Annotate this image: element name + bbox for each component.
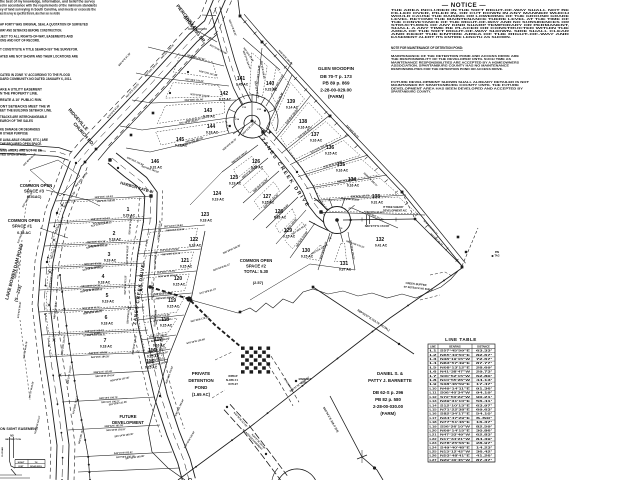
svg-text:145: 145 [176, 137, 185, 143]
svg-text:N71°22'38"E: N71°22'38"E [440, 407, 470, 411]
svg-text:L21: L21 [430, 433, 438, 437]
svg-text:144: 144 [207, 124, 216, 130]
svg-text:S08°46'59"E: S08°46'59"E [440, 382, 470, 386]
svg-text:L22: L22 [430, 437, 438, 441]
svg-text:0.15 AC: 0.15 AC [147, 355, 160, 359]
svg-text:L19: L19 [430, 424, 438, 428]
svg-text:0.15 AC: 0.15 AC [160, 324, 173, 328]
svg-text:L8: L8 [430, 378, 438, 382]
svg-text:COMMON OPEN: COMMON OPEN [8, 218, 41, 223]
svg-text:0.18 AC: 0.18 AC [109, 238, 122, 242]
svg-text:T CONSTITUTE A TITLE SEARCH BY: T CONSTITUTE A TITLE SEARCH BY THE SURVE… [0, 48, 78, 52]
svg-text:N65°40'50"E: N65°40'50"E [440, 353, 470, 357]
svg-text:N10°55'26"W: N10°55'26"W [440, 378, 471, 382]
svg-text:0.31 AC: 0.31 AC [371, 201, 384, 205]
svg-text:87.77': 87.77' [476, 361, 493, 365]
svg-text:DISTANCE: DISTANCE [477, 345, 490, 348]
svg-text:0.18 AC: 0.18 AC [200, 219, 213, 223]
svg-text:6.60': 6.60' [476, 416, 493, 420]
svg-text:LINE TABLE: LINE TABLE [445, 337, 477, 342]
svg-text:0.19 AC: 0.19 AC [104, 259, 117, 263]
svg-text:L7: L7 [430, 374, 438, 378]
svg-text:0.19 AC: 0.19 AC [229, 182, 242, 186]
svg-text:L25: L25 [430, 449, 438, 453]
svg-text:2: 2 [113, 231, 116, 237]
svg-text:ONS AND NOT OF RECORD.: ONS AND NOT OF RECORD. [0, 39, 40, 43]
svg-text:133: 133 [372, 194, 381, 200]
svg-text:COMMON OPEN: COMMON OPEN [240, 258, 273, 263]
svg-text:N26°23'E 89.77': N26°23'E 89.77' [151, 281, 155, 299]
svg-text:N78°25'56"E: N78°25'56"E [440, 441, 470, 445]
svg-text:TOTAL: 5.30: TOTAL: 5.30 [244, 269, 269, 274]
svg-text:(1.65 AC): (1.65 AC) [192, 392, 211, 397]
svg-text:L23: L23 [430, 441, 438, 445]
svg-text:L12: L12 [430, 395, 438, 399]
svg-text:0.45 AC: 0.45 AC [236, 83, 249, 87]
svg-text:SPACE #3: SPACE #3 [24, 189, 45, 194]
svg-text:COMMON OPEN: COMMON OPEN [20, 183, 53, 188]
svg-text:16.37': 16.37' [476, 420, 493, 424]
svg-text:0.15 AC: 0.15 AC [180, 265, 193, 269]
svg-text:SPACE #2: SPACE #2 [246, 264, 267, 269]
svg-text:2-28-00-030.00: 2-28-00-030.00 [373, 404, 404, 409]
svg-text:N47°33'49"W: N47°33'49"W [440, 433, 471, 437]
svg-text:82.67': 82.67' [476, 353, 493, 357]
svg-text:S89°27'3"E 173.58': S89°27'3"E 173.58' [365, 224, 390, 228]
svg-text:DEVELOPMENT: DEVELOPMENT [112, 420, 144, 425]
svg-text:L16: L16 [430, 412, 438, 416]
svg-text:127: 127 [263, 194, 272, 200]
svg-text:NOTE FOR MAINTENANCE OF DETENT: NOTE FOR MAINTENANCE OF DETENTION POND: [391, 46, 463, 50]
svg-text:AP FORTY WAS ORIGINAL SEAL A Q: AP FORTY WAS ORIGINAL SEAL A QUOTATION O… [0, 23, 88, 27]
svg-text:0.18 AC: 0.18 AC [101, 322, 114, 326]
svg-text:140: 140 [266, 81, 275, 87]
svg-text:44.13': 44.13' [476, 378, 493, 382]
svg-text:126: 126 [252, 159, 261, 165]
svg-text:N83°57'49"E: N83°57'49"E [440, 361, 470, 365]
svg-text:0.23 AC: 0.23 AC [265, 88, 278, 92]
svg-text:6: 6 [105, 315, 108, 321]
svg-text:N49°14'11"E: N49°14'11"E [440, 386, 470, 390]
svg-text:S82°34'17"E: S82°34'17"E [440, 412, 470, 416]
svg-text:122: 122 [190, 237, 199, 243]
svg-text:L10: L10 [430, 386, 438, 390]
svg-text:116: 116 [148, 348, 156, 354]
svg-text:82.59': 82.59' [476, 424, 493, 428]
svg-text:DB 62-S p. 296: DB 62-S p. 296 [373, 390, 404, 395]
svg-text:L13: L13 [430, 399, 438, 403]
svg-text:120: 120 [174, 276, 183, 282]
svg-text:S49°40'48"E: S49°40'48"E [440, 445, 470, 449]
svg-text:SPACE #1: SPACE #1 [12, 224, 33, 229]
svg-text:N17°34'21"W: N17°34'21"W [440, 437, 471, 441]
svg-text:118: 118 [161, 317, 169, 323]
svg-text:135: 135 [337, 162, 346, 168]
svg-text:29.73': 29.73' [476, 370, 493, 374]
svg-text:0.15 AC: 0.15 AC [219, 98, 232, 102]
svg-text:4: 4 [102, 274, 105, 280]
svg-text:87.37': 87.37' [476, 458, 493, 462]
svg-text:L4: L4 [430, 361, 438, 365]
svg-text:L11: L11 [430, 391, 438, 395]
svg-text:N77°51'46"E: N77°51'46"E [440, 420, 470, 424]
svg-text:RESPONSIBILITIES FOR THE DETEN: RESPONSIBILITIES FOR THE DETENTION POND … [391, 67, 503, 71]
svg-text:125: 125 [230, 175, 239, 181]
svg-text:0.16 AC: 0.16 AC [347, 184, 360, 188]
svg-text:7: 7 [104, 338, 107, 344]
svg-text:62.83': 62.83' [476, 433, 493, 437]
svg-text:N08°13'12"E: N08°13'12"E [440, 365, 470, 369]
svg-text:DEVELOPMENT A/C: DEVELOPMENT A/C [383, 210, 407, 213]
svg-text:69.63': 69.63' [476, 407, 493, 411]
svg-text:S56°26'10"W: S56°26'10"W [440, 424, 471, 428]
svg-text:5: 5 [106, 293, 109, 299]
svg-text:0.15 AC: 0.15 AC [262, 201, 275, 205]
svg-text:PRIVATE: PRIVATE [192, 371, 210, 376]
svg-text:N38°19'15"W: N38°19'15"W [440, 357, 471, 361]
svg-text:EET THE BUILDING SETBACK LINE.: EET THE BUILDING SETBACK LINE. [0, 109, 52, 113]
svg-text:0.15 AC: 0.15 AC [173, 283, 186, 287]
svg-text:0.18 AC: 0.18 AC [206, 131, 219, 135]
svg-text:0.16 AC: 0.16 AC [274, 216, 287, 220]
svg-text:EARCH OF THE SALES: EARCH OF THE SALES [0, 119, 33, 123]
svg-text:0.19 AC: 0.19 AC [102, 300, 115, 304]
svg-text:OUTLET: OUTLET [228, 383, 238, 386]
svg-text:30.86': 30.86' [476, 428, 493, 432]
svg-text:ATED ARE NOT SHOWN AND THEIR L: ATED ARE NOT SHOWN AND THEIR LOCATIONS A… [0, 55, 78, 59]
svg-text:— NOTICE —: — NOTICE — [442, 2, 487, 9]
svg-text:62.80': 62.80' [476, 374, 493, 378]
svg-text:DETENTION: DETENTION [188, 378, 213, 383]
svg-text:0.15 AC: 0.15 AC [145, 366, 158, 370]
svg-text:L20: L20 [430, 428, 438, 432]
svg-text:132: 132 [376, 237, 385, 243]
svg-text:SIGHT: SIGHT [18, 462, 25, 464]
svg-text:28.97': 28.97' [476, 441, 493, 445]
svg-text:63.33': 63.33' [476, 349, 493, 353]
svg-text:POND: POND [195, 385, 208, 390]
svg-text:N29°40'45"W: N29°40'45"W [440, 458, 471, 462]
svg-text:(FARM): (FARM) [328, 94, 345, 99]
svg-text:1: 1 [127, 207, 130, 213]
svg-text:121: 121 [181, 258, 190, 264]
svg-text:17.47': 17.47' [476, 382, 493, 386]
svg-text:PB 89 p. 869: PB 89 p. 869 [322, 81, 350, 86]
svg-text:0.16 AC: 0.16 AC [310, 139, 323, 143]
svg-text:(FARM): (FARM) [380, 411, 396, 416]
svg-text:ROAD EDG: ROAD EDG [30, 465, 42, 468]
svg-text:56.41': 56.41' [476, 399, 493, 403]
svg-text:DIST: DIST [19, 466, 25, 468]
svg-text:S37°39'W 89.59': S37°39'W 89.59' [154, 251, 158, 269]
svg-text:28.69': 28.69' [476, 365, 493, 369]
svg-text:0.14 AC: 0.14 AC [286, 106, 299, 110]
svg-text:N09°14'15"E: N09°14'15"E [440, 428, 470, 432]
svg-text:0.18 AC: 0.18 AC [189, 244, 202, 248]
svg-text:WAY AND SETBACKS BEFORE CONSTR: WAY AND SETBACKS BEFORE CONSTRUCTION. [0, 29, 62, 33]
svg-text:FUTURE: FUTURE [120, 414, 137, 419]
svg-text:91.36': 91.36' [476, 386, 493, 390]
svg-text:141: 141 [237, 76, 246, 82]
svg-text:N41°38'47"W: N41°38'47"W [440, 370, 471, 374]
svg-text:128: 128 [275, 209, 284, 215]
svg-text:115: 115 [146, 359, 154, 365]
svg-text:L9: L9 [430, 382, 438, 386]
svg-text:139: 139 [287, 99, 296, 105]
svg-text:S57°45'59"E: S57°45'59"E [440, 349, 470, 353]
svg-text:BEARING: BEARING [449, 345, 461, 348]
svg-text:PB 82 p. 580: PB 82 p. 580 [375, 397, 401, 402]
svg-text:L3: L3 [430, 357, 438, 361]
svg-text:S72°50'22"W: S72°50'22"W [440, 395, 471, 399]
svg-text:SLOPE 3:1: SLOPE 3:1 [226, 379, 239, 382]
svg-text:19.00': 19.00' [301, 382, 308, 385]
svg-text:CL ROAD: CL ROAD [1, 447, 4, 457]
svg-text:36.42': 36.42' [476, 449, 493, 453]
svg-text:L5: L5 [430, 365, 438, 369]
svg-text:ass B survey as specified ther: ass B survey as specified therein, also … [0, 12, 60, 16]
svg-text:84.39': 84.39' [476, 437, 493, 441]
svg-text:54.10': 54.10' [476, 412, 493, 416]
svg-text:N34°47'29"E: N34°47'29"E [440, 416, 470, 420]
svg-text:123: 123 [201, 212, 210, 218]
svg-text:DB 70-T p. 173: DB 70-T p. 173 [320, 74, 352, 79]
svg-text:0.16 AC: 0.16 AC [336, 169, 349, 173]
svg-text:146: 146 [151, 159, 160, 165]
svg-text:0.15 AC: 0.15 AC [167, 305, 180, 309]
svg-text:REATE A 10' PUBLIC R/W.: REATE A 10' PUBLIC R/W. [0, 98, 42, 102]
svg-text:0.16 AC: 0.16 AC [298, 126, 311, 130]
svg-text:PATTY J. BARNETTE: PATTY J. BARNETTE [368, 378, 412, 383]
svg-text:0.41 AC: 0.41 AC [375, 244, 388, 248]
svg-text:0.37 AC: 0.37 AC [339, 268, 352, 272]
svg-text:63.97': 63.97' [476, 403, 493, 407]
svg-text:143: 143 [204, 108, 213, 114]
svg-text:DANIEL S. &: DANIEL S. & [377, 371, 404, 376]
svg-text:0.16 AC: 0.16 AC [251, 166, 264, 170]
svg-text:0.19 AC: 0.19 AC [212, 198, 225, 202]
svg-text:N THE PROPERTY LINE.: N THE PROPERTY LINE. [0, 92, 38, 96]
svg-text:72.67': 72.67' [476, 357, 493, 361]
svg-text:138: 138 [299, 119, 308, 125]
svg-text:RIPRAP: RIPRAP [228, 375, 237, 378]
svg-text:L18: L18 [430, 420, 438, 424]
svg-text:124: 124 [213, 191, 222, 197]
svg-text:S06°40'34"W: S06°40'34"W [440, 391, 471, 395]
svg-text:EASEMENT ALERT ITS ENTIRE LENG: EASEMENT ALERT ITS ENTIRE LENGTH AS SHOW… [391, 35, 511, 39]
svg-text:142: 142 [220, 91, 229, 97]
svg-text:7H: 7H [35, 462, 38, 464]
svg-text:131: 131 [340, 261, 349, 267]
svg-text:L6: L6 [430, 370, 438, 374]
svg-text:L15: L15 [430, 407, 438, 411]
svg-text:0.15 AC: 0.15 AC [325, 152, 338, 156]
svg-text:0.18 AC: 0.18 AC [98, 281, 111, 285]
svg-text:90.21': 90.21' [476, 395, 493, 399]
svg-text:SPARTANBURG COUNTY.: SPARTANBURG COUNTY. [391, 90, 431, 94]
svg-text:N39°31'10"E: N39°31'10"E [440, 399, 470, 403]
svg-text:L14: L14 [430, 403, 438, 407]
svg-text:LINE: LINE [430, 345, 436, 348]
svg-text:L1: L1 [430, 349, 438, 353]
svg-text:(2.57): (2.57) [253, 280, 264, 285]
svg-text:3: 3 [108, 252, 111, 258]
svg-text:119: 119 [168, 298, 176, 304]
svg-text:134: 134 [348, 177, 357, 183]
svg-text:DARD COMMUNITY-NO DATED JANUAR: DARD COMMUNITY-NO DATED JANUARY 6, 2011. [0, 77, 72, 81]
svg-text:GLEN WOODFIN: GLEN WOODFIN [318, 66, 355, 71]
svg-text:S00°52'15"W: S00°52'15"W [440, 374, 471, 378]
svg-text:41.26': 41.26' [476, 454, 493, 458]
svg-text:130: 130 [302, 248, 311, 254]
svg-text:136: 136 [326, 145, 335, 151]
svg-text:R OTHER PURPOSE: R OTHER PURPOSE [0, 132, 28, 136]
svg-text:2-28-00-029.00: 2-28-00-029.00 [320, 88, 352, 93]
svg-text:L17: L17 [430, 416, 438, 420]
svg-text:137: 137 [311, 132, 320, 138]
svg-text:14.23': 14.23' [476, 445, 493, 449]
svg-text:L24: L24 [430, 445, 438, 449]
svg-text:ON SIGHT EASEMENT: ON SIGHT EASEMENT [0, 426, 38, 431]
svg-text:S12°10'13"E: S12°10'13"E [440, 403, 470, 407]
svg-text:94.19': 94.19' [476, 391, 493, 395]
svg-text:N13°12'42"W: N13°12'42"W [440, 449, 471, 453]
svg-text:L2: L2 [430, 353, 438, 357]
svg-text:0.18 AC: 0.18 AC [100, 345, 113, 349]
svg-text:TAG: TAG [494, 255, 499, 258]
svg-text:L26: L26 [430, 454, 438, 458]
svg-text:N53°48'41"E: N53°48'41"E [440, 454, 470, 458]
svg-text:L27: L27 [430, 458, 438, 462]
